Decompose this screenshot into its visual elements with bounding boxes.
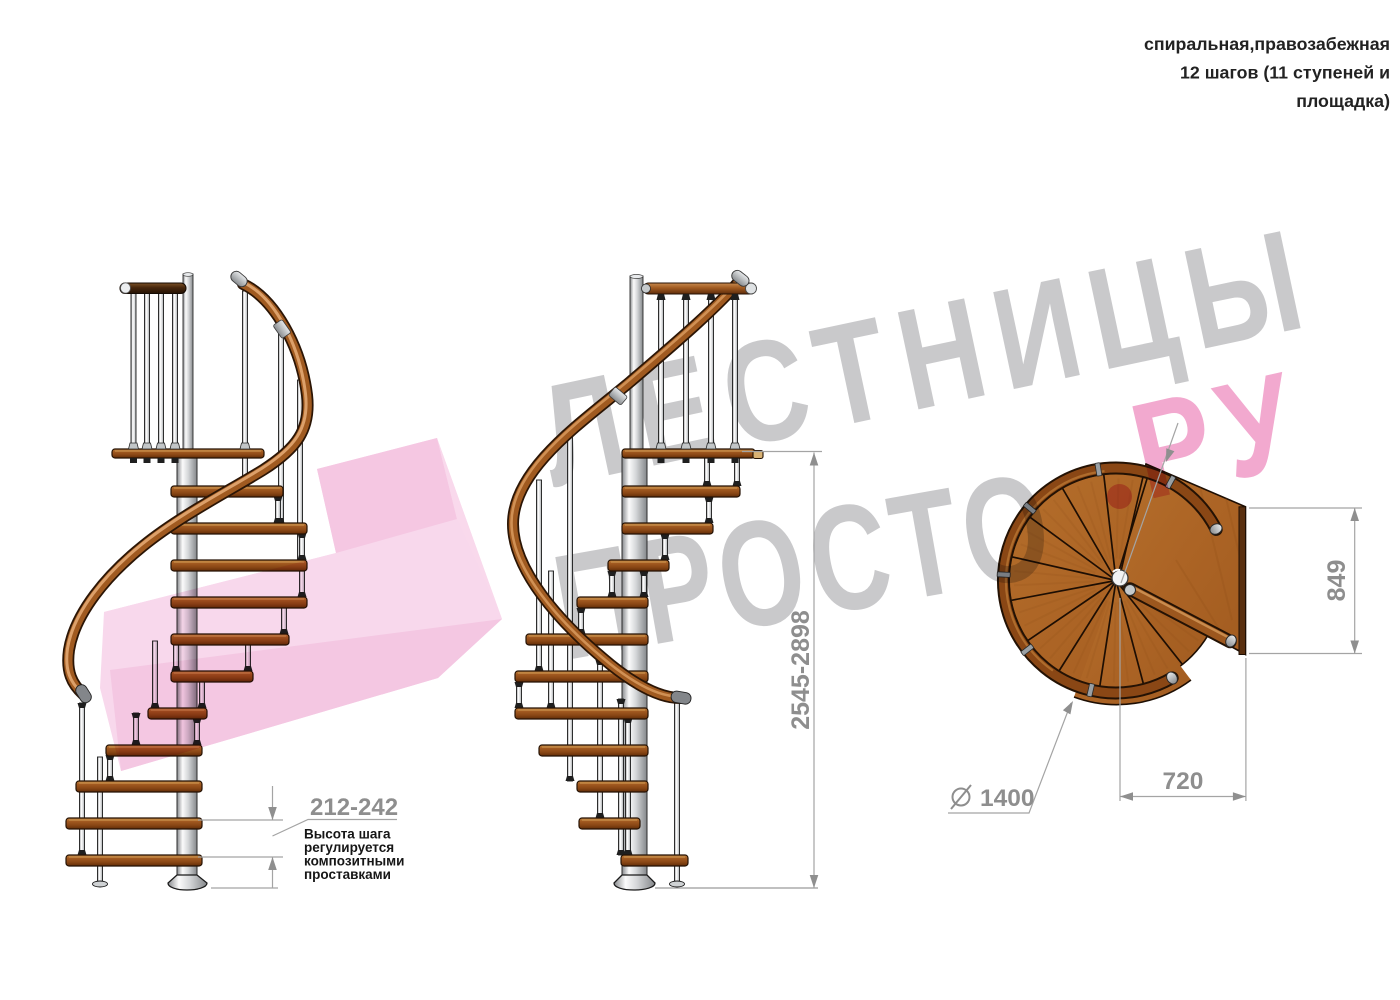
svg-text:2545-2898: 2545-2898: [787, 610, 815, 730]
svg-text:спиральная,правозабежная: спиральная,правозабежная: [1144, 34, 1390, 54]
svg-text:площадка): площадка): [1296, 91, 1390, 111]
svg-text:12 шагов (11 ступеней и: 12 шагов (11 ступеней и: [1180, 63, 1390, 83]
svg-text:720: 720: [1163, 768, 1204, 795]
svg-text:проставками: проставками: [304, 867, 391, 882]
svg-text:212-242: 212-242: [310, 794, 398, 821]
svg-text:1400: 1400: [980, 785, 1035, 812]
svg-text:849: 849: [1323, 560, 1351, 602]
